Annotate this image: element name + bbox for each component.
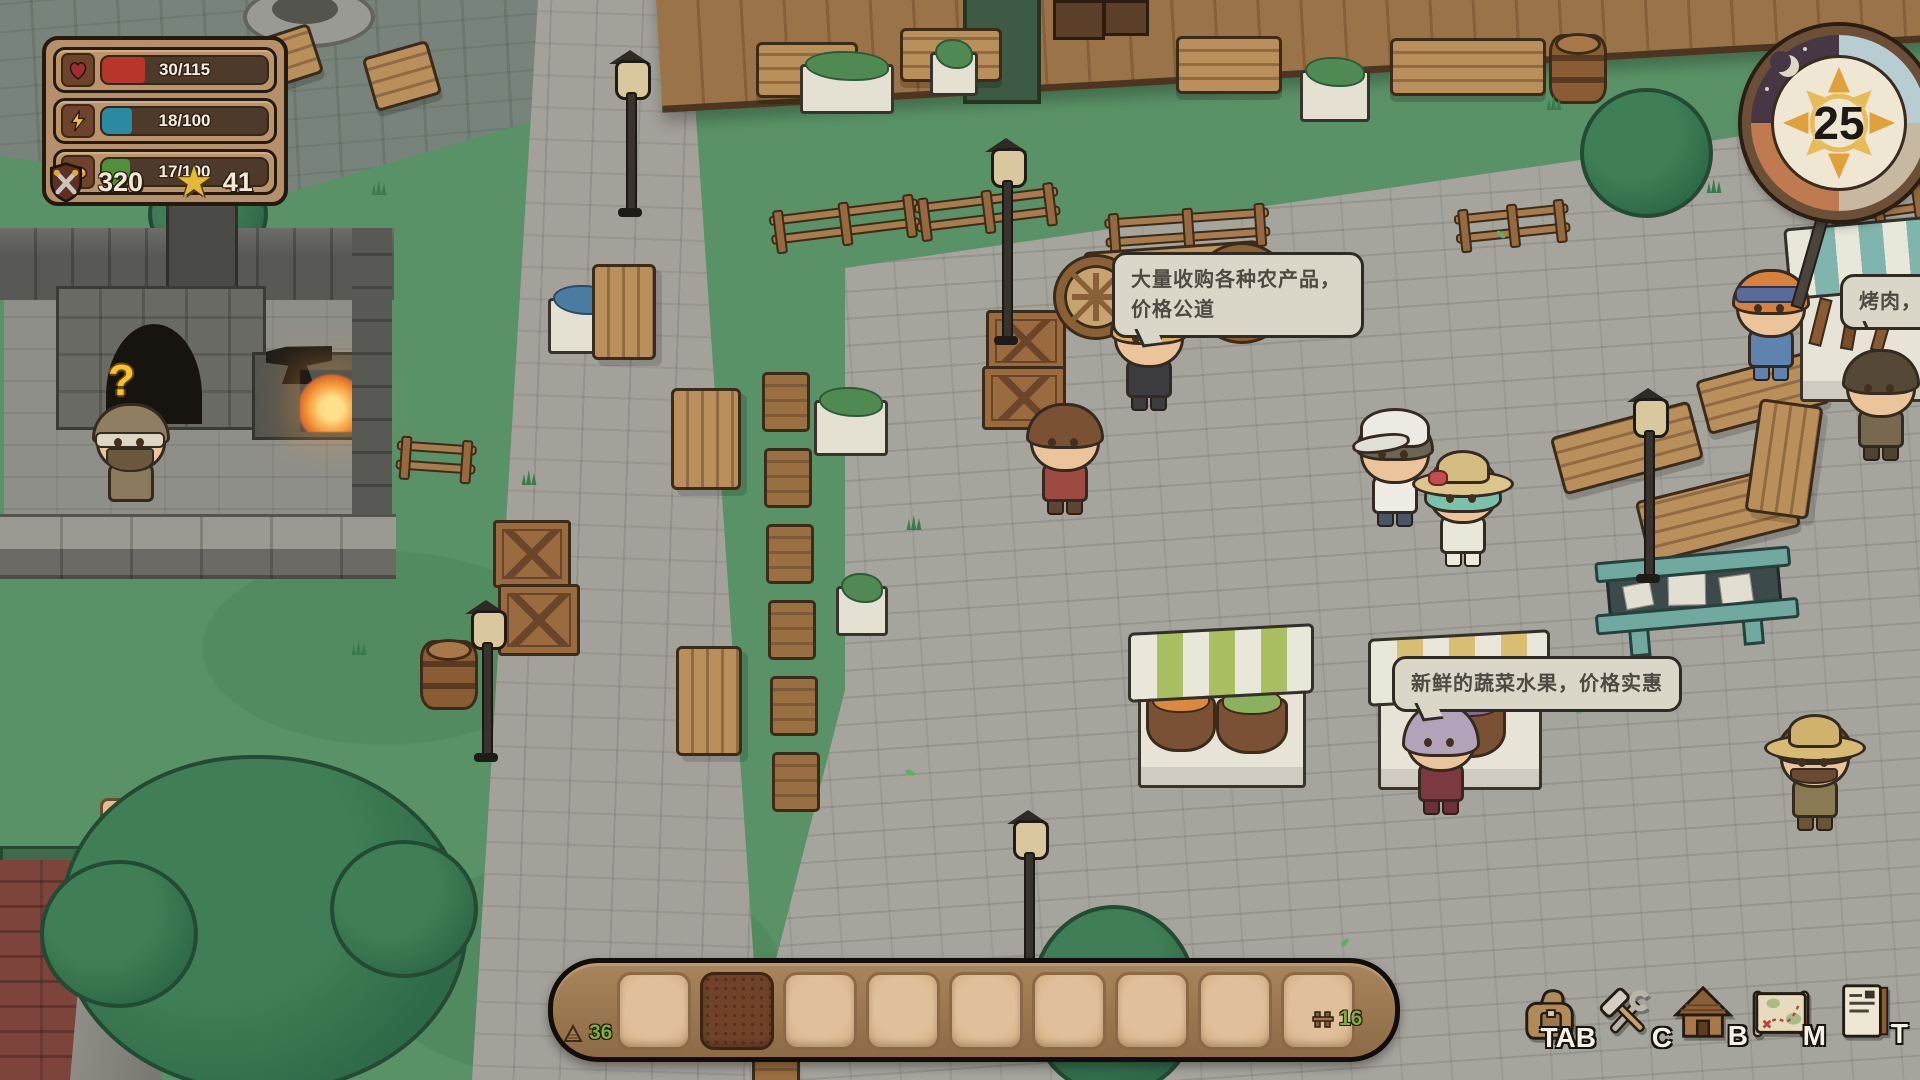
crate[interactable] [498, 584, 580, 656]
fence-icon [1311, 1007, 1335, 1031]
hat-bow [1428, 470, 1448, 486]
hotbar-slot-7[interactable] [1115, 972, 1189, 1050]
task-button[interactable]: T [1832, 980, 1894, 1042]
speech-bubble: 烤肉，烤蔬 [1840, 274, 1920, 330]
planter [930, 52, 978, 96]
bench[interactable] [1176, 36, 1282, 94]
build-button[interactable]: B [1672, 982, 1734, 1044]
planter-flowers [814, 400, 888, 456]
hotbar-slot-6[interactable] [1032, 972, 1106, 1050]
wood-icon [561, 1021, 585, 1045]
speech-text: 烤肉，烤蔬 [1859, 291, 1920, 313]
inventory-button[interactable]: TAB [1520, 984, 1582, 1046]
star-icon: ★ [175, 161, 213, 203]
planter [800, 64, 894, 114]
blacksmith-npc[interactable] [88, 396, 168, 514]
mustache [1790, 768, 1838, 784]
hotbar-slot-1[interactable] [617, 972, 691, 1050]
shortcut-key: T [1891, 1018, 1908, 1050]
fence-post [768, 600, 816, 660]
hotbar-slot-4[interactable] [866, 972, 940, 1050]
stall-awning [1128, 623, 1314, 703]
fence-post [762, 372, 810, 432]
cabbage-basket [1216, 698, 1288, 754]
grass-tuft [370, 180, 390, 195]
craft-button[interactable]: C [1596, 984, 1658, 1046]
tree [40, 860, 198, 1008]
energy-bar-row: 18/100 [53, 98, 277, 144]
blacksmith-wall-front [0, 514, 396, 579]
fence-counter: 16 [1311, 1007, 1362, 1031]
game-screen: ? [0, 0, 1920, 1080]
speech-bubble: 新鲜的蔬菜水果，价格实惠 [1392, 656, 1682, 712]
hotbar: 36 16 [548, 958, 1400, 1062]
health-value: 30/115 [102, 57, 267, 83]
headband [95, 432, 165, 448]
kid-npc[interactable] [1728, 262, 1808, 380]
shortcut-key: M [1803, 1020, 1826, 1052]
blacksmith-wall [352, 228, 392, 550]
fence-post [770, 676, 818, 736]
day-number: 25 [1813, 96, 1864, 150]
carrot-basket [1146, 696, 1216, 752]
shortcut-key: B [1728, 1020, 1748, 1052]
house-icon [1672, 982, 1734, 1044]
moon-icon [1777, 55, 1799, 77]
rail-fence [395, 435, 478, 484]
bench[interactable] [671, 388, 741, 490]
planter-flower [836, 586, 888, 636]
speech-bubble: 大量收购各种农产品，价格公道 [1112, 252, 1364, 338]
pinned-paper [1668, 573, 1707, 606]
speech-text: 新鲜的蔬菜水果，价格实惠 [1411, 673, 1663, 695]
hotbar-slots [617, 972, 1355, 1050]
speech-text: 大量收购各种农产品，价格公道 [1131, 269, 1341, 321]
hotbar-slot-5[interactable] [949, 972, 1023, 1050]
heart-icon [61, 53, 95, 87]
health-bar-row: 30/115 [53, 47, 277, 93]
wall-cabinet [1103, 0, 1149, 36]
wall-cabinet [1053, 0, 1105, 40]
fence-post [764, 448, 812, 508]
pinned-paper [1622, 581, 1654, 610]
rail-fence [768, 193, 922, 255]
notice-board[interactable] [1594, 546, 1792, 658]
shortcut-key: TAB [1541, 1022, 1596, 1054]
beard [106, 448, 154, 472]
tree [1580, 88, 1713, 218]
craft-tools-icon [1596, 984, 1658, 1046]
hotbar-slot-2[interactable] [700, 972, 774, 1050]
map-button[interactable]: M [1750, 982, 1812, 1044]
lightning-icon [61, 104, 95, 138]
note-icon [1832, 980, 1894, 1042]
fence-post [772, 752, 820, 812]
farmer-npc[interactable] [1772, 712, 1852, 830]
bench[interactable] [592, 264, 656, 360]
energy-value: 18/100 [102, 108, 267, 134]
fence-count: 16 [1339, 1007, 1362, 1031]
tree [330, 840, 478, 978]
barrel [1549, 34, 1607, 104]
wood-counter: 36 [561, 1021, 612, 1045]
barrel [420, 640, 478, 710]
combat-shield-icon [44, 160, 88, 204]
vegetable-stall[interactable] [1128, 628, 1308, 788]
combat-count: 320 [98, 167, 143, 198]
hotbar-slot-3[interactable] [783, 972, 857, 1050]
shortcut-key: C [1652, 1022, 1672, 1054]
wood-count: 36 [589, 1021, 612, 1045]
villager-girl-npc[interactable] [1022, 396, 1102, 514]
crate[interactable] [493, 520, 571, 588]
straw-hat-girl-npc[interactable] [1420, 448, 1500, 566]
bench[interactable] [1390, 38, 1546, 96]
hotbar-slot-8[interactable] [1198, 972, 1272, 1050]
grass-tuft [350, 640, 370, 655]
planter [1300, 70, 1370, 122]
rail-fence [913, 181, 1062, 242]
fence-post [766, 524, 814, 584]
quest-marker[interactable]: ? [108, 356, 135, 406]
bbq-vendor-npc[interactable] [1838, 342, 1918, 460]
star-count: 41 [223, 167, 253, 198]
bench[interactable] [676, 646, 742, 756]
hud-counters: 320 ★ 41 [44, 160, 253, 204]
